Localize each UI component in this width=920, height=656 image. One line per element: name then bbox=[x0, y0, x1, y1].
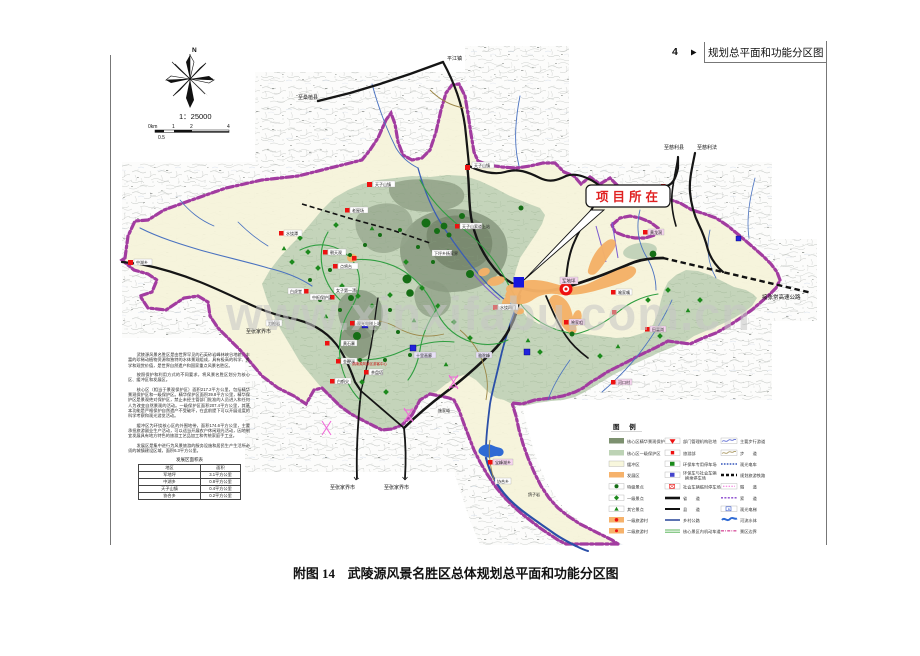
svg-text:步 道: 步 道 bbox=[740, 450, 758, 457]
svg-text:项目所在: 项目所在 bbox=[596, 189, 662, 204]
svg-text:宝峰湖乡: 宝峰湖乡 bbox=[495, 459, 511, 465]
svg-text:天子山镇: 天子山镇 bbox=[375, 181, 391, 187]
svg-text:主要步行游道: 主要步行游道 bbox=[740, 438, 766, 445]
svg-text:0km: 0km bbox=[148, 124, 157, 130]
svg-text:观光电车: 观光电车 bbox=[740, 461, 757, 468]
svg-text:规划旅游铁路: 规划旅游铁路 bbox=[740, 472, 766, 479]
svg-text:军地坪: 军地坪 bbox=[562, 278, 576, 285]
svg-text:至张家界市: 至张家界市 bbox=[384, 484, 409, 491]
svg-text:隧 道: 隧 道 bbox=[740, 484, 758, 491]
svg-text:社会车辆临时停车场: 社会车辆临时停车场 bbox=[683, 484, 721, 491]
svg-text:部门管理机构驻地: 部门管理机构驻地 bbox=[683, 438, 717, 445]
svg-text:至张家界市: 至张家界市 bbox=[330, 484, 355, 491]
svg-text:朝天观: 朝天观 bbox=[330, 250, 342, 255]
svg-text:骆驼峰: 骆驼峰 bbox=[478, 352, 490, 358]
svg-text:至慈利县: 至慈利县 bbox=[664, 144, 684, 151]
svg-text:接张常高速公路: 接张常高速公路 bbox=[762, 293, 801, 301]
svg-text:中湖乡: 中湖乡 bbox=[136, 259, 148, 265]
svg-text:点将台: 点将台 bbox=[340, 263, 352, 269]
svg-text:鸽子岩: 鸽子岩 bbox=[528, 491, 540, 497]
svg-text:县 道: 县 道 bbox=[683, 506, 701, 513]
svg-text:天子山索道上站: 天子山索道上站 bbox=[462, 223, 490, 229]
svg-text:旅游部: 旅游部 bbox=[683, 450, 696, 457]
svg-text:1: 1 bbox=[172, 124, 175, 130]
svg-text:十里画廊: 十里画廊 bbox=[416, 352, 432, 358]
svg-text:规划总平面和功能分区图: 规划总平面和功能分区图 bbox=[708, 46, 824, 59]
svg-text:发展区: 发展区 bbox=[627, 472, 640, 479]
svg-text:河流水体: 河流水体 bbox=[740, 517, 758, 524]
svg-text:老屋场: 老屋场 bbox=[352, 207, 364, 213]
svg-text:核心景区内机动车道: 核心景区内机动车道 bbox=[683, 528, 722, 535]
svg-text:河口村: 河口村 bbox=[618, 379, 630, 385]
svg-text:1：25000: 1：25000 bbox=[179, 112, 212, 121]
svg-text:协合乡: 协合乡 bbox=[497, 478, 509, 484]
svg-text:武陵源风景区游客中心: 武陵源风景区游客中心 bbox=[352, 361, 387, 366]
svg-text:4: 4 bbox=[227, 124, 230, 130]
svg-text:施家峪: 施家峪 bbox=[438, 407, 450, 413]
svg-text:乡村公路: 乡村公路 bbox=[683, 517, 701, 524]
svg-text:黄龙洞: 黄龙洞 bbox=[650, 229, 662, 235]
svg-text:缓冲区: 缓冲区 bbox=[627, 461, 640, 468]
svg-text:4: 4 bbox=[672, 46, 678, 58]
svg-text:2: 2 bbox=[190, 124, 193, 130]
svg-text:平江镇: 平江镇 bbox=[447, 55, 462, 62]
svg-text:水绕潭: 水绕潭 bbox=[286, 230, 298, 236]
svg-text:换乘停车场: 换乘停车场 bbox=[685, 475, 706, 482]
svg-text:www.xinxifabu.com.cn: www.xinxifabu.com.cn bbox=[225, 287, 751, 340]
svg-text:一级景点: 一级景点 bbox=[627, 495, 644, 502]
svg-text:茶盘塔: 茶盘塔 bbox=[371, 369, 383, 375]
svg-text:环保车专用停车场: 环保车专用停车场 bbox=[683, 461, 717, 468]
svg-text:其它景点: 其它景点 bbox=[627, 506, 644, 513]
svg-text:E: E bbox=[728, 507, 730, 511]
svg-text:观光电梯: 观光电梯 bbox=[740, 506, 757, 513]
svg-text:省 道: 省 道 bbox=[683, 495, 701, 502]
svg-text:白鹤尖: 白鹤尖 bbox=[337, 378, 349, 384]
svg-text:N: N bbox=[192, 47, 197, 54]
svg-text:特级景点: 特级景点 bbox=[627, 484, 644, 491]
svg-text:索 道: 索 道 bbox=[740, 495, 758, 502]
svg-text:黄石寨: 黄石寨 bbox=[343, 340, 355, 346]
svg-text:核心区精华景观保护区: 核心区精华景观保护区 bbox=[627, 438, 669, 445]
svg-text:下坪乡杨家界: 下坪乡杨家界 bbox=[434, 250, 458, 256]
svg-text:天子山镇: 天子山镇 bbox=[474, 162, 490, 168]
svg-text:附图 14 武陵源风景名胜区总体规划总平面和功能分区图: 附图 14 武陵源风景名胜区总体规划总平面和功能分区图 bbox=[293, 566, 619, 581]
svg-text:至桑植县: 至桑植县 bbox=[298, 94, 318, 101]
svg-text:二级旅游村: 二级旅游村 bbox=[627, 528, 649, 535]
svg-text:至慈利法: 至慈利法 bbox=[697, 144, 717, 151]
svg-text:图 例: 图 例 bbox=[613, 422, 640, 431]
svg-text:景区边界: 景区边界 bbox=[740, 528, 758, 535]
svg-text:一级旅游村: 一级旅游村 bbox=[627, 517, 649, 524]
svg-text:核心区一级保护区: 核心区一级保护区 bbox=[627, 450, 661, 457]
svg-text:0.5: 0.5 bbox=[158, 135, 165, 141]
